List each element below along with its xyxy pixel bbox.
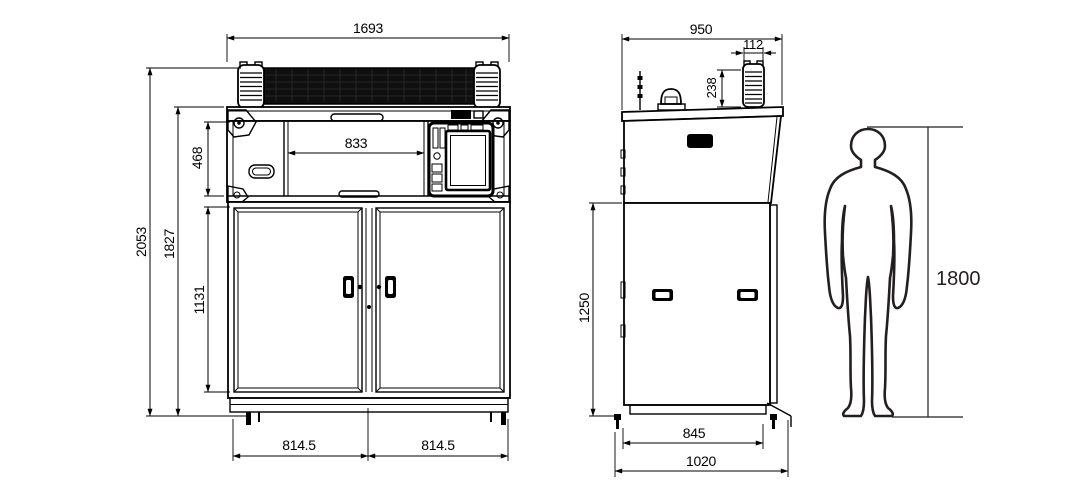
side-body [621, 203, 777, 405]
right-spool [474, 62, 500, 108]
dim-front-total-height: 2053 [133, 227, 149, 257]
side-handle-right[interactable] [737, 289, 758, 301]
front-top-section [227, 107, 510, 202]
dim-front-body-height: 1827 [161, 229, 177, 259]
front-foot-right [501, 412, 506, 425]
beacon-light [658, 89, 685, 110]
front-view [227, 62, 510, 425]
dim-human-height: 1800 [936, 268, 981, 290]
side-top-section [621, 116, 781, 203]
dim-side-base-inner-depth: 845 [683, 425, 706, 441]
control-panel[interactable] [429, 123, 493, 196]
dim-front-inner-width: 833 [345, 135, 368, 151]
side-vent-slot [687, 134, 713, 148]
side-spool [743, 61, 764, 107]
left-spool [238, 62, 264, 108]
right-door-lock[interactable] [377, 285, 381, 289]
dim-side-body-height: 1250 [576, 293, 592, 323]
rear-panel [770, 205, 777, 403]
dim-front-right-door-width: 814.5 [421, 437, 455, 453]
dim-side-spool-height: 238 [704, 78, 719, 99]
front-roller-bar [238, 62, 500, 108]
front-foot-left [246, 412, 251, 425]
dim-front-top-section-height: 468 [189, 146, 205, 169]
front-base [230, 398, 508, 425]
human-figure: 1800 [825, 127, 981, 417]
dim-front-total-width: 1693 [353, 20, 383, 36]
dim-side-base-outer-depth: 1020 [686, 453, 716, 469]
side-foot-right [770, 414, 777, 420]
dim-side-total-depth: 950 [690, 21, 713, 37]
dim-side-spool-width: 112 [743, 37, 763, 52]
side-view [614, 61, 791, 429]
dimension-drawing-page: 1693 833 468 2053 1827 1131 814.5 814.5 [0, 0, 1069, 500]
side-foot-left [614, 414, 621, 420]
cabinet-frame [228, 202, 510, 398]
dim-front-left-door-width: 814.5 [282, 437, 316, 453]
front-door-section [228, 202, 510, 398]
left-door-lock[interactable] [358, 285, 362, 289]
dim-front-door-height: 1131 [191, 285, 207, 314]
side-handle-left[interactable] [652, 289, 673, 301]
technical-drawing: 1693 833 468 2053 1827 1131 814.5 814.5 [0, 0, 1069, 500]
beam-tab [451, 110, 471, 119]
human-silhouette [825, 129, 912, 416]
antenna [638, 71, 643, 110]
touchscreen[interactable] [446, 131, 490, 190]
roller-bar [260, 68, 478, 104]
